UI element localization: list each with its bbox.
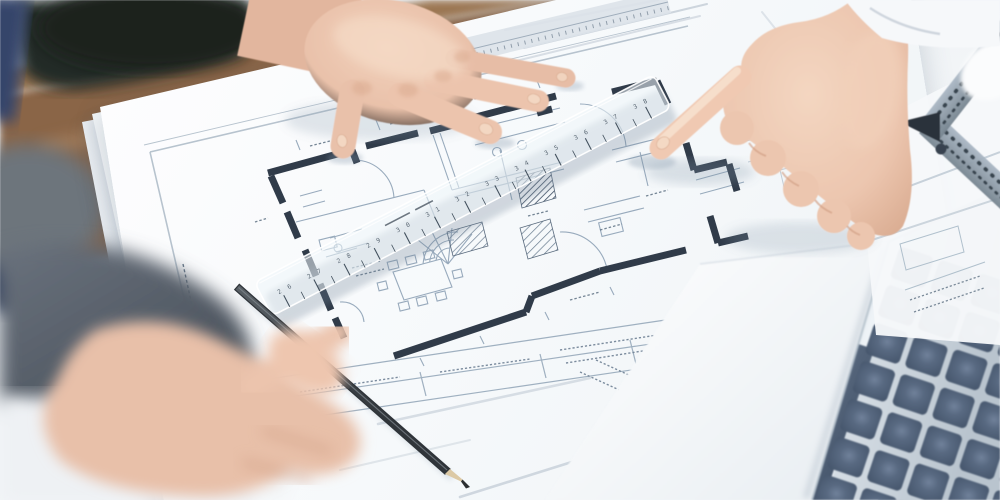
foreground-person (0, 243, 361, 500)
photo-architects-blueprint: 26 27 28 29 30 31 32 33 34 35 36 37 38 (0, 0, 1000, 500)
hand-holding-ruler (237, 0, 584, 164)
set-square-hole (936, 144, 947, 155)
foreground-layer (0, 0, 1000, 500)
